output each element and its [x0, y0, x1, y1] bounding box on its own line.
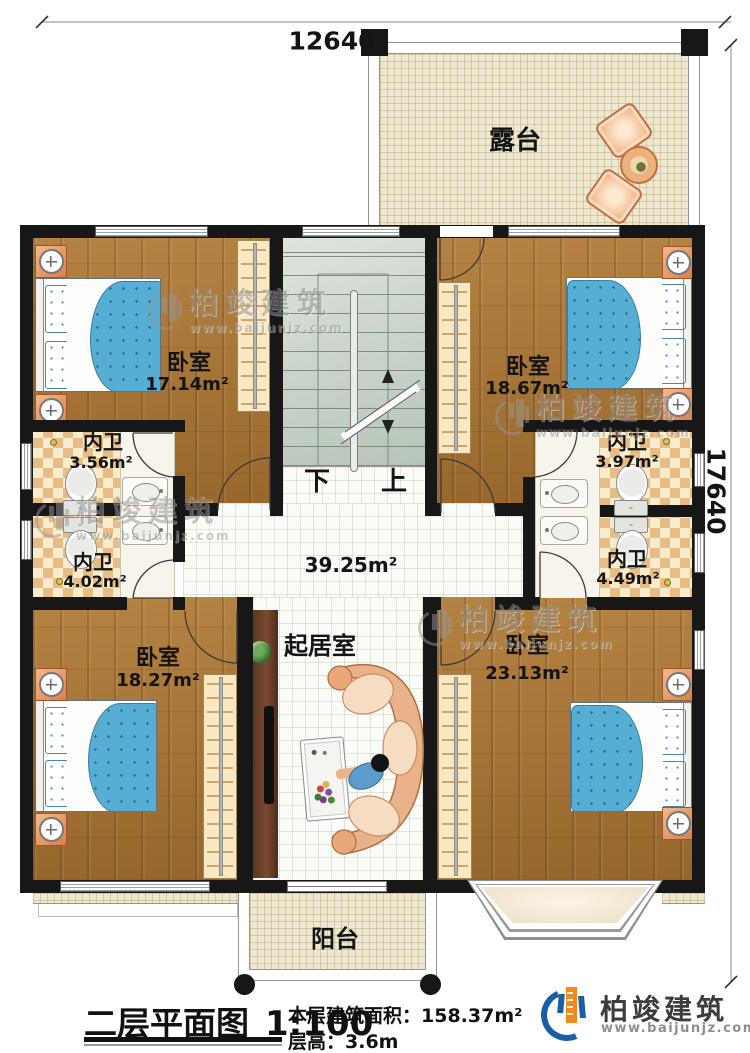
area-label-bedroom-se: 23.13m²: [485, 665, 569, 683]
area-label-bedroom-ne: 18.67m²: [485, 380, 569, 398]
area-label-bedroom-nw: 17.14m²: [145, 376, 229, 394]
stair-arrow-up: [382, 369, 394, 383]
area-label-bath-w: 4.02m²: [63, 574, 126, 590]
stair-guides: [318, 274, 388, 466]
door-arc: [218, 458, 270, 510]
area-label-bedroom-sw: 18.27m²: [116, 672, 200, 690]
door-arc: [540, 552, 586, 598]
annotations: [0, 0, 750, 1053]
footer-height-label: 层高：: [288, 1031, 345, 1053]
area-label-bath-ne: 3.97m²: [595, 454, 658, 470]
footer-area-label: 本层建筑面积：: [288, 1005, 421, 1027]
footer-height-row: 层高：3.6m: [288, 1027, 398, 1053]
room-label-bedroom-se: 卧室: [505, 636, 549, 658]
room-label-bedroom-sw: 卧室: [136, 648, 180, 670]
stair-label-down: 下: [304, 469, 330, 495]
stair-arrow-down: [382, 420, 394, 434]
door-arc: [441, 459, 495, 513]
door-arc: [133, 560, 173, 598]
room-label-terrace: 露台: [489, 128, 541, 154]
area-label-hall: 39.25m²: [305, 555, 398, 575]
door-arc: [133, 433, 173, 477]
brand-url: www.baijunjz.com: [601, 1021, 750, 1036]
person: [335, 754, 389, 794]
footer-area-value: 158.37m²: [421, 1005, 522, 1027]
room-label-balcony: 阳台: [311, 927, 359, 951]
door-arcs: [133, 238, 586, 665]
brand-logo-icon: [540, 982, 596, 1038]
footer-height-value: 3.6m: [345, 1031, 398, 1053]
door-arc: [185, 611, 237, 663]
room-label-bath-nw: 内卫: [83, 432, 123, 452]
room-label-bedroom-ne: 卧室: [506, 357, 550, 379]
dimension-label-right: 17640: [704, 448, 729, 535]
door-arc: [535, 430, 577, 477]
dimension-label-top: 12640: [289, 29, 376, 54]
room-label-bath-e: 内卫: [607, 549, 647, 569]
door-arc: [440, 238, 484, 280]
room-label-bath-w: 内卫: [73, 552, 113, 572]
area-label-bath-nw: 3.56m²: [69, 455, 132, 471]
room-label-living: 起居室: [284, 634, 356, 658]
door-arc: [441, 611, 495, 665]
room-label-bedroom-nw: 卧室: [167, 353, 211, 375]
dimension-ticks: [36, 16, 737, 988]
footer-area-row: 本层建筑面积：158.37m²: [288, 1001, 522, 1028]
room-label-bath-ne: 内卫: [607, 432, 647, 452]
footer-title-underline-thin: [84, 1044, 282, 1046]
footer-title-underline: [84, 1037, 282, 1042]
floor-plan: 12640 17640 露台 卧室 17.14m² 卧室 18.67m² 内卫 …: [0, 0, 750, 1053]
area-label-bath-e: 4.49m²: [596, 571, 659, 587]
break-line: [341, 380, 420, 444]
stair-label-up: 上: [381, 469, 407, 495]
